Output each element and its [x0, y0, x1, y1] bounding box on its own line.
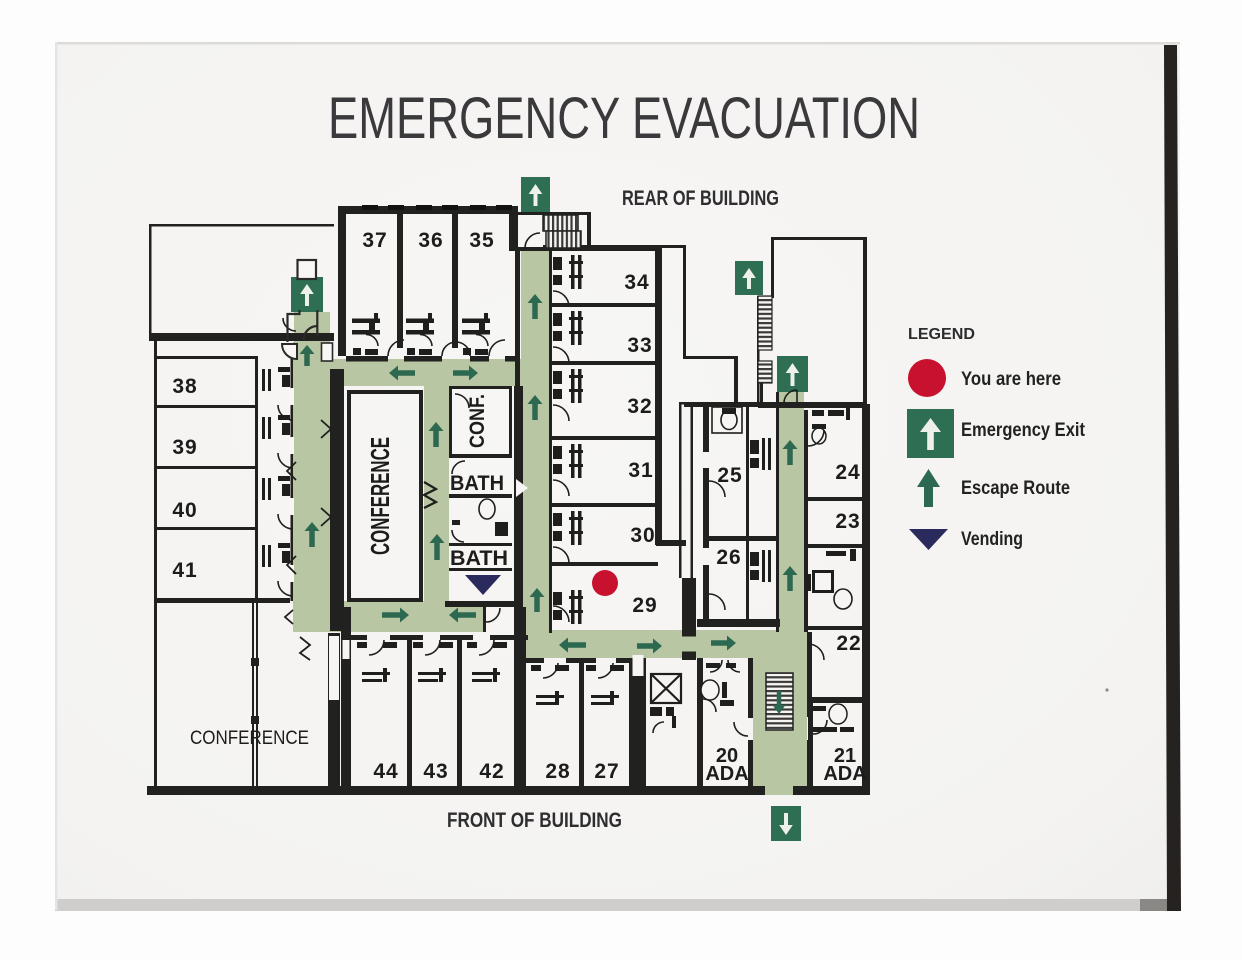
svg-text:You are here: You are here	[961, 369, 1061, 390]
svg-text:CONFERENCE: CONFERENCE	[365, 437, 395, 555]
svg-text:32: 32	[627, 395, 652, 418]
svg-text:44: 44	[373, 760, 398, 783]
svg-text:29: 29	[632, 594, 657, 617]
svg-text:24: 24	[835, 461, 860, 484]
svg-text:CONF.: CONF.	[466, 394, 489, 448]
svg-text:41: 41	[172, 559, 197, 582]
svg-text:33: 33	[627, 334, 652, 357]
svg-text:35: 35	[469, 229, 494, 252]
svg-text:27: 27	[594, 760, 619, 783]
svg-text:34: 34	[624, 271, 649, 294]
svg-text:28: 28	[545, 760, 570, 783]
svg-text:43: 43	[423, 760, 448, 783]
svg-text:BATH: BATH	[450, 547, 508, 570]
svg-text:31: 31	[628, 459, 653, 482]
svg-text:Emergency Exit: Emergency Exit	[961, 420, 1086, 441]
svg-text:Escape Route: Escape Route	[961, 478, 1070, 499]
svg-text:ADA: ADA	[705, 763, 748, 785]
svg-text:BATH: BATH	[450, 472, 504, 495]
svg-text:39: 39	[172, 436, 197, 459]
svg-text:37: 37	[362, 229, 387, 252]
svg-text:EMERGENCY EVACUATION: EMERGENCY EVACUATION	[328, 86, 920, 151]
svg-text:22: 22	[836, 632, 861, 655]
svg-text:42: 42	[479, 760, 504, 783]
svg-text:40: 40	[172, 499, 197, 522]
svg-text:30: 30	[630, 524, 655, 547]
svg-text:FRONT OF BUILDING: FRONT OF BUILDING	[447, 809, 622, 832]
svg-text:36: 36	[418, 229, 443, 252]
svg-text:ADA: ADA	[823, 763, 866, 785]
svg-text:LEGEND: LEGEND	[908, 326, 975, 343]
svg-text:23: 23	[835, 510, 860, 533]
svg-text:38: 38	[172, 375, 197, 398]
svg-text:CONFERENCE: CONFERENCE	[190, 728, 309, 749]
svg-text:REAR OF BUILDING: REAR OF BUILDING	[622, 187, 779, 210]
svg-text:25: 25	[717, 464, 742, 487]
svg-text:26: 26	[716, 546, 741, 569]
svg-text:Vending: Vending	[961, 529, 1023, 550]
